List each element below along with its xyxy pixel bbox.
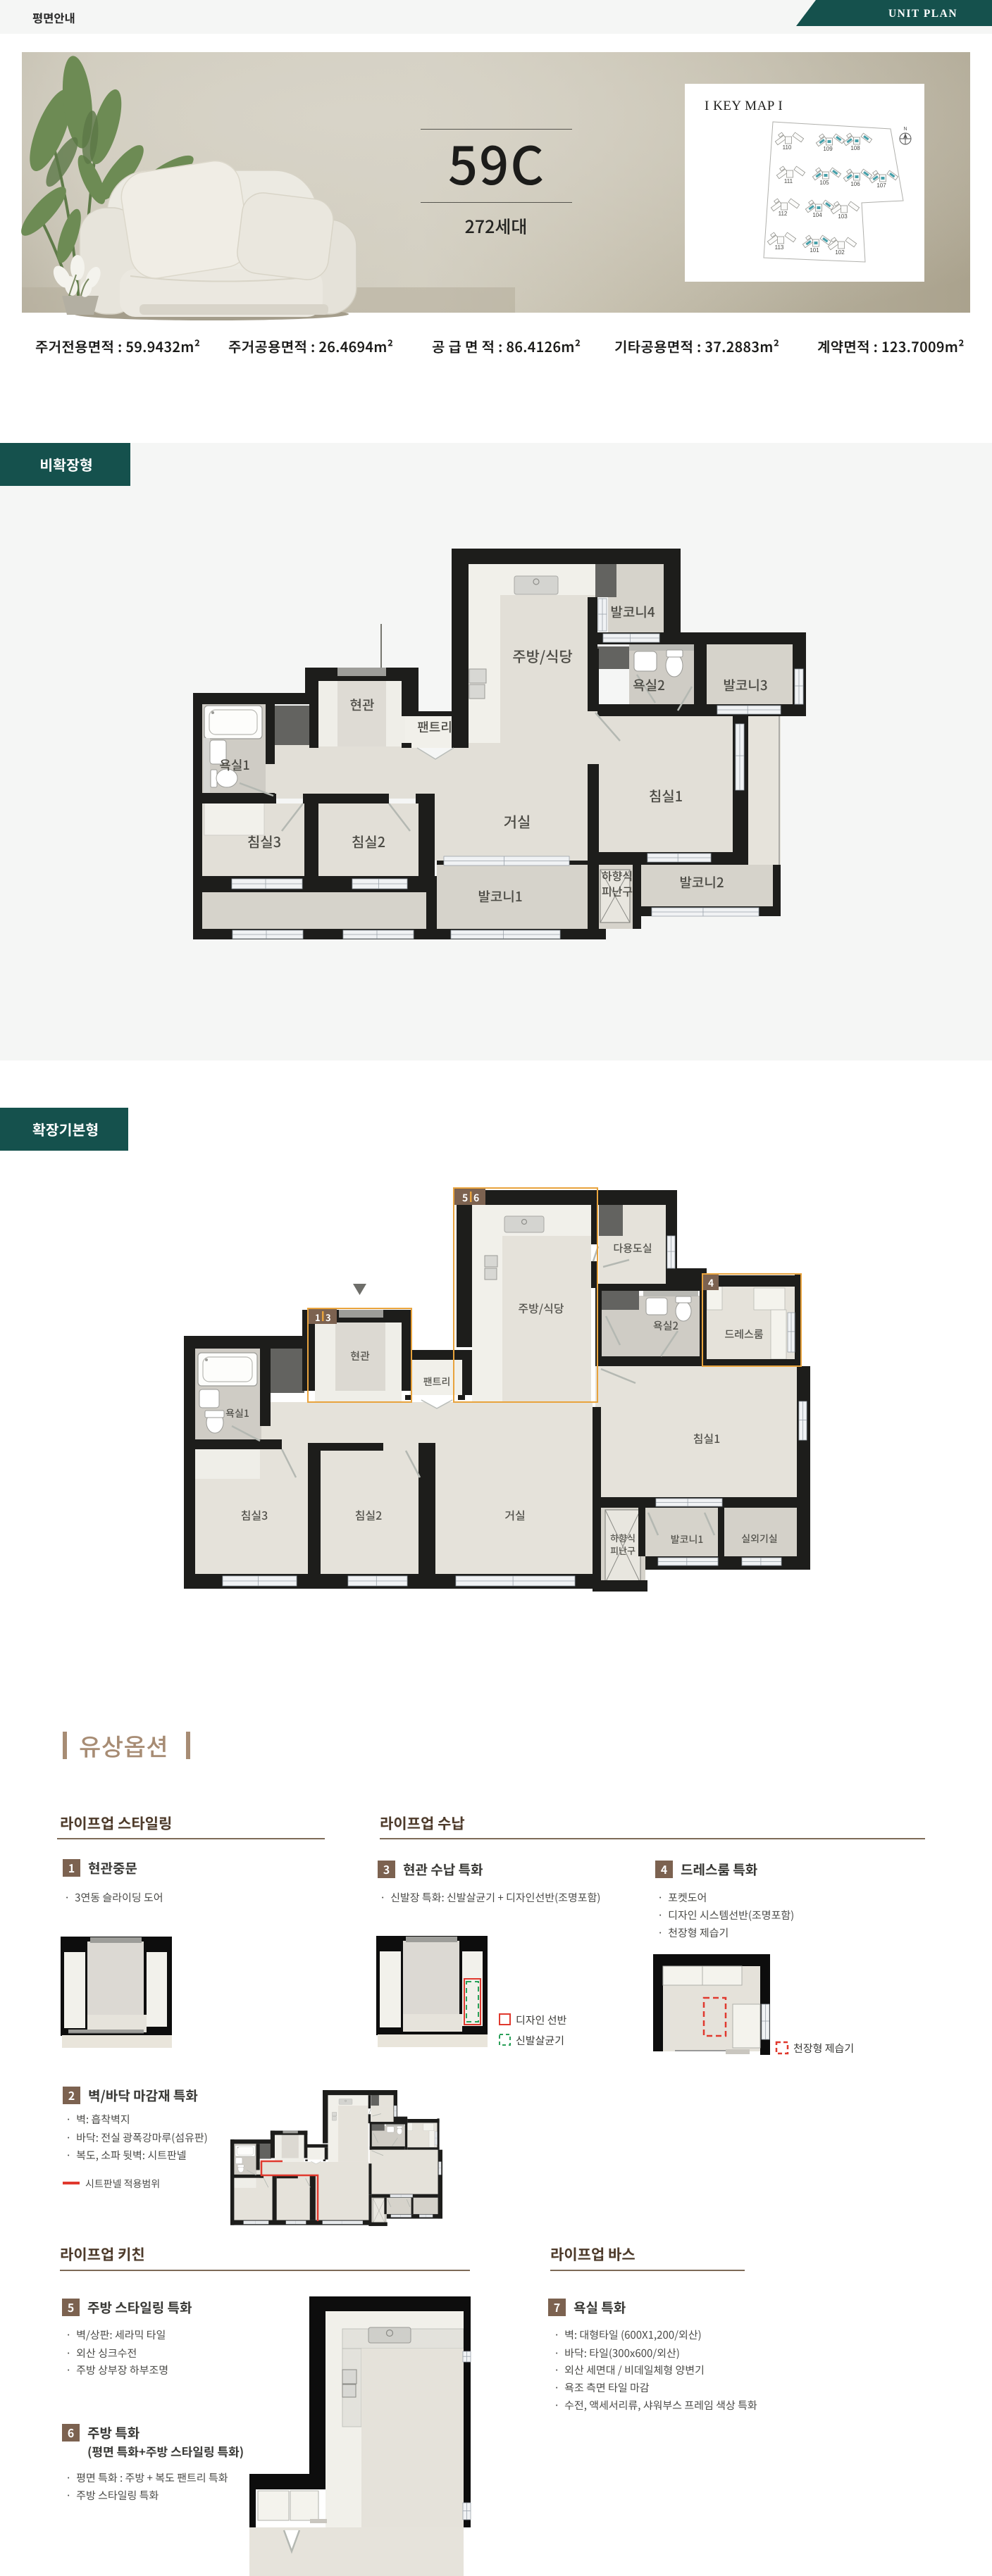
svg-text:101: 101 [810, 247, 819, 254]
svg-text:102: 102 [835, 249, 845, 256]
svg-text:109: 109 [823, 146, 833, 152]
svg-text:N: N [903, 127, 907, 132]
svg-text:106: 106 [850, 181, 860, 187]
svg-text:103: 103 [838, 213, 848, 220]
svg-text:110: 110 [783, 144, 792, 151]
svg-text:112: 112 [779, 211, 788, 217]
svg-text:107: 107 [876, 182, 886, 189]
svg-text:UNIT PLAN: UNIT PLAN [888, 8, 957, 20]
svg-text:113: 113 [775, 244, 784, 251]
svg-text:108: 108 [850, 145, 860, 151]
svg-text:105: 105 [819, 180, 829, 186]
svg-text:111: 111 [784, 178, 793, 185]
svg-text:104: 104 [812, 212, 822, 218]
svg-text:I KEY MAP I: I KEY MAP I [705, 99, 783, 113]
